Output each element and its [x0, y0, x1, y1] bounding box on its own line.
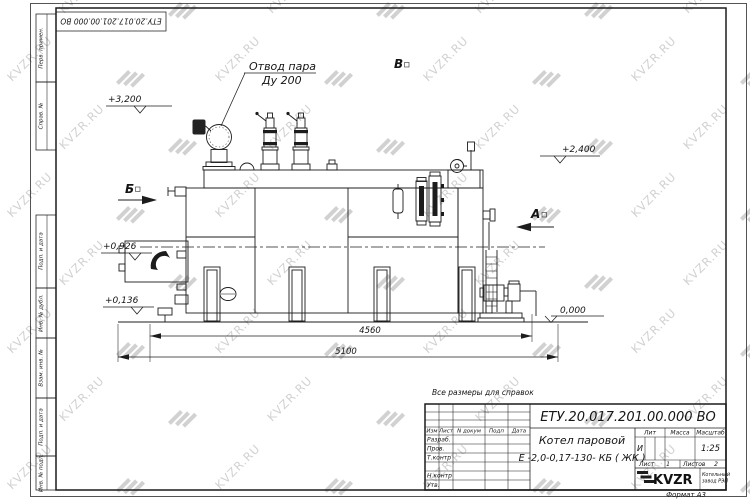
- product-name-1: Котел паровой: [539, 434, 625, 447]
- sheet-value: 1: [666, 461, 670, 468]
- drum-dome: [240, 163, 254, 170]
- row-tcontrol: Т.контр: [427, 455, 451, 462]
- callout-line2: Ду 200: [261, 74, 302, 87]
- corner-stamp-designation: ЕТУ.20.017.201.00.000 ВО: [60, 17, 161, 26]
- row-developed: Разраб.: [427, 437, 451, 444]
- svg-text:KVZR.RU: KVZR.RU: [472, 373, 523, 424]
- svg-text:KVZR.RU: KVZR.RU: [212, 441, 263, 492]
- elevation-0926: +0,926: [101, 242, 152, 260]
- side-stamp-label: Перв. примен.: [39, 27, 45, 69]
- row-approved: Утв.: [427, 482, 440, 489]
- title-designation: ЕТУ.20.017.201.00.000 ВО: [540, 410, 716, 425]
- svg-text:KVZR.RU: KVZR.RU: [56, 101, 107, 152]
- elevation-zero: 0,000: [545, 306, 604, 323]
- svg-text:KVZR.RU: KVZR.RU: [56, 237, 107, 288]
- format-label: Формат А3: [666, 491, 706, 499]
- svg-text:А: А: [530, 207, 540, 221]
- dimension-label: 5100: [335, 347, 357, 357]
- mass-label: Масса: [670, 430, 689, 437]
- elevation-3200: +3,200: [106, 95, 172, 113]
- svg-text:KVZR.RU: KVZR.RU: [420, 33, 471, 84]
- boiler-drawing-canvas: KVZR.RUKVZR.RUKVZR.RUKVZR.RUKVZR.RUKVZR.…: [0, 0, 750, 500]
- fan-and-thermometer: [451, 142, 475, 173]
- section-b: Б: [118, 182, 157, 204]
- svg-text:+2,400: +2,400: [562, 145, 596, 155]
- side-stamp-label: Инв. № подл.: [39, 454, 45, 492]
- callout-line1: Отвод пара: [249, 60, 316, 73]
- sheet-label: Лист: [638, 461, 655, 468]
- water-level-gauges: [393, 172, 444, 226]
- dimensions: 4560 5100: [118, 314, 558, 362]
- dimension-label: 4560: [359, 326, 381, 336]
- svg-text:0,000: 0,000: [560, 306, 586, 316]
- elevation-0136: +0,136: [103, 296, 154, 314]
- corner-stamp: ЕТУ.20.017.201.00.000 ВО: [56, 12, 166, 31]
- svg-text:KVZR.RU: KVZR.RU: [4, 169, 55, 220]
- logo-sub1: Котельный: [702, 472, 730, 478]
- svg-text:KVZR.RU: KVZR.RU: [628, 33, 679, 84]
- col-izm: Изм: [426, 429, 437, 435]
- svg-text:KVZR.RU: KVZR.RU: [680, 101, 731, 152]
- svg-text:Б: Б: [125, 182, 134, 196]
- svg-text:KVZR.RU: KVZR.RU: [472, 101, 523, 152]
- elevation-2400: +2,400: [540, 145, 600, 163]
- side-stamp-label: Подп. и дата: [39, 408, 45, 446]
- svg-text:KVZR.RU: KVZR.RU: [628, 305, 679, 356]
- svg-text:KVZR.RU: KVZR.RU: [212, 169, 263, 220]
- side-stamp-label: Подп. и дата: [39, 232, 45, 270]
- row-ncontrol: Н.контр: [427, 473, 452, 480]
- col-date: Дата: [511, 429, 527, 435]
- sheets-label: Листов: [682, 461, 706, 468]
- logo-text: KVZR: [653, 473, 693, 488]
- svg-text:KVZR.RU: KVZR.RU: [680, 237, 731, 288]
- boiler-shell: [186, 163, 483, 313]
- svg-text:KVZR.RU: KVZR.RU: [4, 441, 55, 492]
- col-sign: Подп: [489, 429, 504, 435]
- svg-text:KVZR.RU: KVZR.RU: [4, 33, 55, 84]
- svg-text:KVZR.RU: KVZR.RU: [628, 169, 679, 220]
- svg-text:KVZR.RU: KVZR.RU: [264, 373, 315, 424]
- svg-text:KVZR.RU: KVZR.RU: [212, 33, 263, 84]
- svg-text:+0,136: +0,136: [105, 296, 139, 306]
- product-name-2: Е -2,0-0,17-130- КБ ( ЖК ): [519, 453, 646, 464]
- svg-text:KVZR.RU: KVZR.RU: [56, 373, 107, 424]
- scale-value: 1:25: [701, 444, 720, 454]
- steam-outlet-valve: [193, 120, 236, 171]
- svg-text:+3,200: +3,200: [108, 95, 142, 105]
- side-stamp: Перв. примен. Справ. № Подп. и дата Инв.…: [36, 14, 56, 492]
- view-v: В: [394, 57, 409, 71]
- drawing-sheet: KVZR.RUKVZR.RUKVZR.RUKVZR.RUKVZR.RUKVZR.…: [0, 0, 750, 500]
- col-list: Лист: [438, 429, 454, 435]
- side-stamp-label: Справ. №: [39, 102, 45, 129]
- svg-text:KVZR.RU: KVZR.RU: [264, 237, 315, 288]
- svg-text:+0,926: +0,926: [103, 242, 137, 252]
- title-block: Изм Лист N докум Подп Дата Разраб. Пров.…: [425, 404, 730, 490]
- col-doc: N докум: [457, 429, 481, 435]
- reference-note: Все размеры для справок: [432, 388, 534, 397]
- svg-text:KVZR.RU: KVZR.RU: [472, 237, 523, 288]
- lit-label: Лит: [643, 430, 656, 437]
- feed-pump: [478, 281, 536, 322]
- svg-text:В: В: [394, 57, 403, 71]
- side-stamp-label: Взам. инв. №: [39, 349, 45, 387]
- sheets-value: 2: [714, 461, 718, 468]
- row-checked: Пров.: [427, 446, 445, 453]
- lit-value: И: [637, 444, 643, 453]
- logo-sub2: завод РЭП: [702, 479, 728, 485]
- svg-text:KVZR.RU: KVZR.RU: [420, 169, 471, 220]
- scale-label: Масштаб: [696, 430, 725, 437]
- side-stamp-label: Инв. № дубл.: [39, 294, 45, 332]
- svg-text:KVZR.RU: KVZR.RU: [4, 305, 55, 356]
